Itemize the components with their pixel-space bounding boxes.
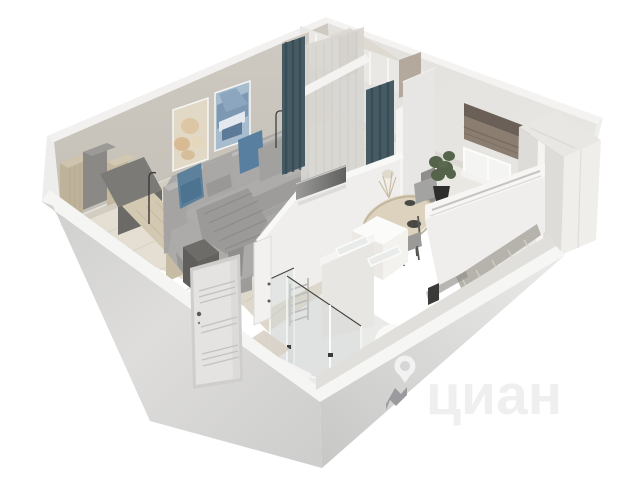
- svg-text:циан: циан: [426, 363, 562, 427]
